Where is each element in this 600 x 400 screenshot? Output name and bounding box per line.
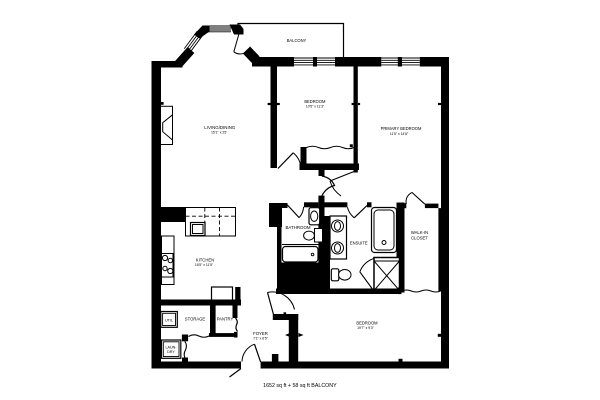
svg-text:DRY: DRY [167,350,175,354]
svg-text:BEDROOM: BEDROOM [356,320,378,325]
svg-text:ENSUITE: ENSUITE [350,240,368,245]
svg-text:KITCHEN: KITCHEN [196,257,214,262]
svg-text:10'5" x 11'3": 10'5" x 11'3" [306,104,325,108]
svg-text:LAUN-: LAUN- [165,346,177,350]
svg-text:WALK-IN: WALK-IN [411,230,428,235]
svg-text:7'1" x 6'5": 7'1" x 6'5" [253,337,269,341]
svg-text:BALCONY: BALCONY [287,38,307,43]
svg-text:LIVING/DINING: LIVING/DINING [204,125,236,130]
svg-text:STORAGE: STORAGE [185,316,206,321]
svg-text:CLOSET: CLOSET [411,235,428,240]
svg-text:11'5" x 14'8": 11'5" x 14'8" [390,132,409,136]
svg-text:FOYER: FOYER [253,331,268,336]
svg-text:BEDROOM: BEDROOM [304,99,326,104]
svg-text:PRIMARY BEDROOM: PRIMARY BEDROOM [381,126,422,131]
svg-text:19'7" x 9'3": 19'7" x 9'3" [357,326,375,330]
svg-text:15'1" x 25': 15'1" x 25' [211,131,227,135]
svg-text:PANTRY: PANTRY [217,316,234,321]
svg-text:1652 sq ft + 58 sq ft BALCONY: 1652 sq ft + 58 sq ft BALCONY [263,383,337,389]
svg-text:UTIL: UTIL [165,318,173,322]
svg-text:BATHROOM: BATHROOM [285,225,310,230]
svg-text:16'5" x 11'5": 16'5" x 11'5" [195,263,214,267]
